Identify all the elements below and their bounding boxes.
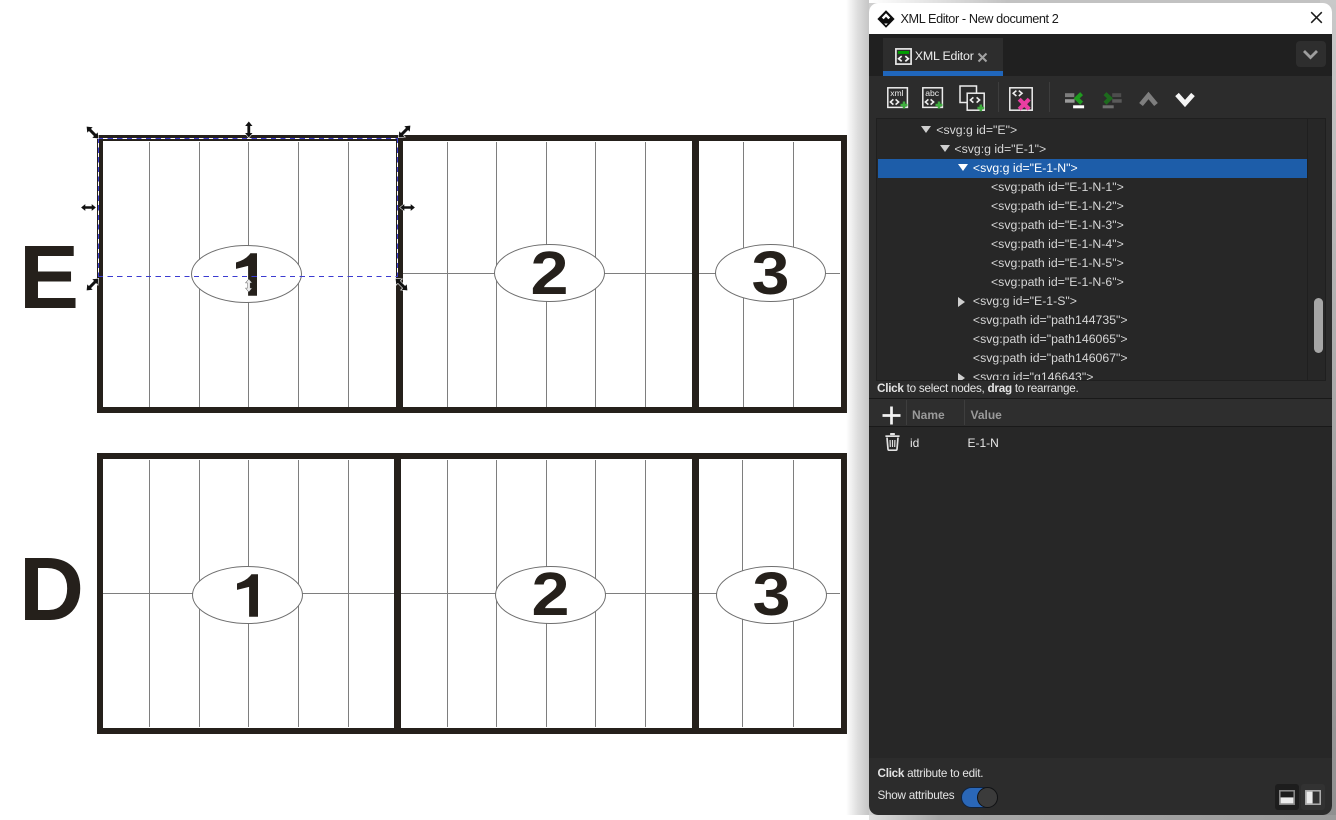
svg-text:abc: abc bbox=[925, 88, 940, 98]
svg-text:xml: xml bbox=[890, 88, 903, 98]
